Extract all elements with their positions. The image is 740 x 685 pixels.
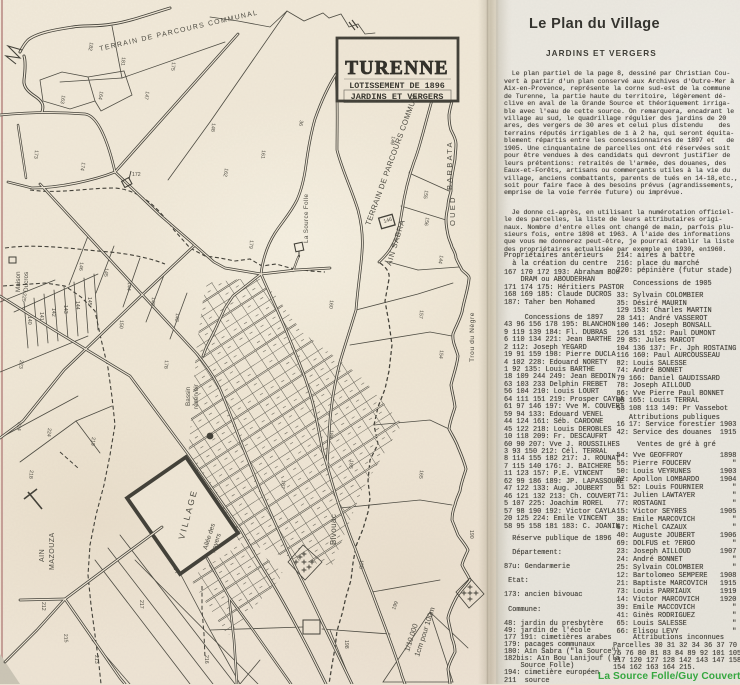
svg-text:OUED: OUED [448, 195, 457, 226]
svg-text:199: 199 [391, 600, 400, 610]
svg-text:144: 144 [125, 282, 132, 291]
svg-text:141: 141 [38, 312, 44, 321]
svg-text:144: 144 [437, 255, 444, 265]
svg-text:190: 190 [468, 530, 474, 539]
svg-text:181: 181 [119, 57, 126, 66]
svg-text:187: 187 [279, 480, 286, 489]
svg-text:174: 174 [79, 162, 86, 172]
svg-text:217: 217 [138, 600, 144, 609]
svg-text:185: 185 [347, 460, 354, 469]
svg-text:144: 144 [74, 301, 80, 310]
svg-text:175: 175 [169, 62, 176, 71]
svg-text:173: 173 [32, 150, 39, 159]
svg-text:AIN SABRA: AIN SABRA [384, 218, 407, 266]
svg-text:143: 143 [149, 297, 156, 306]
svg-text:150: 150 [118, 320, 124, 329]
svg-text:223: 223 [17, 360, 24, 369]
svg-text:178: 178 [162, 360, 169, 369]
svg-text:184: 184 [327, 430, 334, 439]
svg-text:145: 145 [102, 268, 109, 277]
svg-text:148: 148 [209, 123, 216, 132]
svg-text:182: 182 [87, 42, 94, 52]
svg-text:réservoir: réservoir [193, 383, 200, 409]
svg-text:MAZOUZA: MAZOUZA [49, 532, 56, 570]
svg-text:213: 213 [93, 655, 99, 664]
svg-text:145: 145 [86, 297, 92, 306]
svg-text:TERRAIN DE PARCOURS COMMUN: TERRAIN DE PARCOURS COMMUN [363, 94, 419, 227]
svg-text:Bivouac: Bivouac [329, 514, 338, 545]
svg-text:TERRAIN DE PARCOURS COMMUNAL: TERRAIN DE PARCOURS COMMUNAL [99, 10, 259, 53]
svg-text:215: 215 [62, 634, 69, 643]
svg-text:La Source Folle: La Source Folle [303, 194, 310, 243]
svg-text:162: 162 [222, 168, 229, 178]
svg-text:146: 146 [383, 217, 393, 225]
svg-text:218: 218 [27, 470, 34, 479]
svg-text:143: 143 [62, 305, 68, 314]
svg-text:Trou du Nègre: Trou du Nègre [469, 312, 476, 362]
svg-text:LOTISSEMENT DE 1896: LOTISSEMENT DE 1896 [349, 81, 445, 91]
svg-text:36: 36 [297, 120, 304, 127]
svg-text:140: 140 [26, 316, 32, 325]
svg-text:BARBATA: BARBATA [445, 140, 454, 190]
svg-text:212: 212 [40, 602, 46, 611]
svg-text:149: 149 [389, 136, 396, 146]
svg-text:219: 219 [89, 437, 96, 446]
svg-text:154: 154 [437, 350, 444, 359]
svg-text:163: 163 [59, 95, 66, 105]
svg-text:160: 160 [327, 300, 334, 309]
svg-text:Ducros: Ducros [23, 272, 30, 292]
svg-text:225: 225 [20, 293, 27, 302]
svg-text:147: 147 [143, 91, 150, 101]
svg-text:155: 155 [422, 190, 429, 200]
svg-text:AIN: AIN [39, 549, 46, 562]
svg-text:TURENNE: TURENNE [345, 58, 449, 79]
svg-text:224: 224 [15, 422, 22, 431]
svg-text:179: 179 [247, 240, 254, 249]
svg-text:216: 216 [203, 655, 209, 664]
svg-text:Maison: Maison [15, 271, 22, 292]
svg-text:156: 156 [423, 217, 430, 227]
svg-text:JARDINS ET VERGERS: JARDINS ET VERGERS [351, 92, 444, 102]
svg-text:142: 142 [173, 313, 180, 322]
svg-text:172: 172 [132, 172, 141, 178]
svg-text:198: 198 [343, 640, 349, 649]
svg-text:142: 142 [50, 308, 56, 317]
svg-text:146: 146 [77, 262, 84, 271]
svg-text:165: 165 [417, 470, 424, 479]
svg-text:161: 161 [259, 150, 266, 159]
svg-text:164: 164 [97, 91, 104, 101]
svg-text:Bassin: Bassin [185, 386, 192, 406]
svg-text:158: 158 [357, 560, 364, 569]
svg-text:224: 224 [45, 428, 52, 437]
svg-text:157: 157 [417, 310, 424, 319]
